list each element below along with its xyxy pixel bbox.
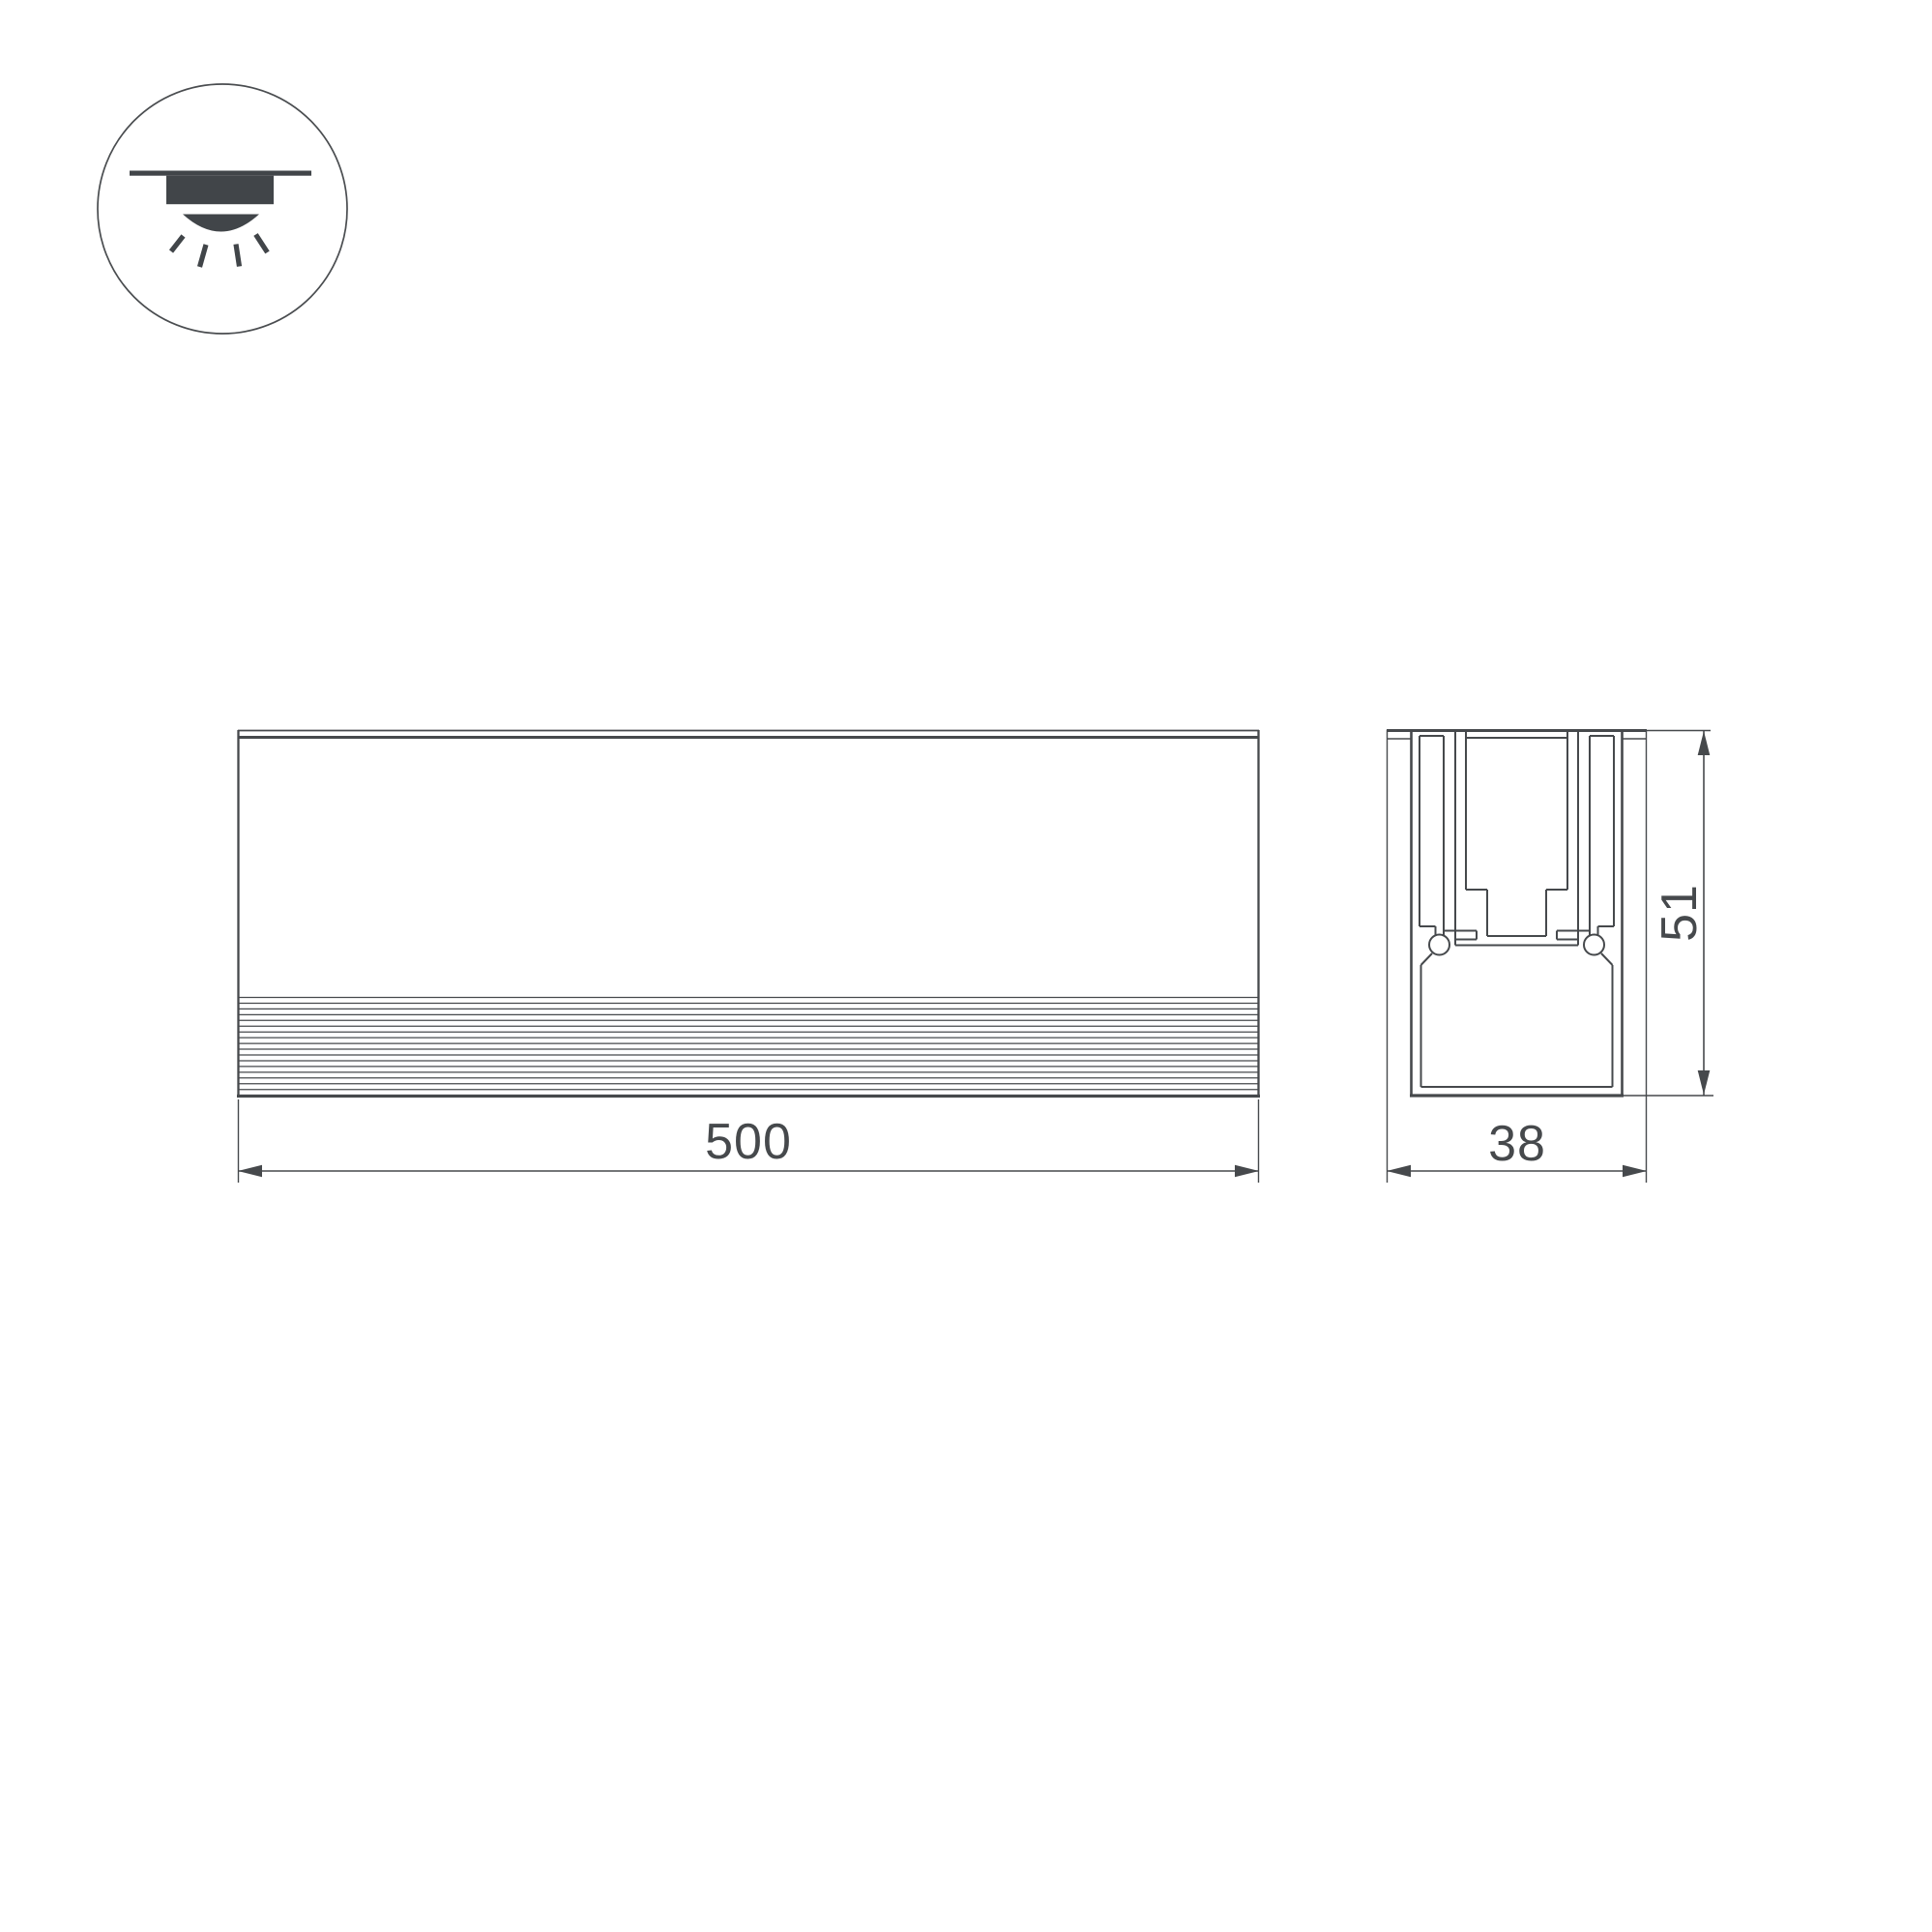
icon-recessed-housing [166, 176, 274, 205]
arrow-length-left [238, 1165, 262, 1177]
section-screw-boss-right [1584, 935, 1604, 955]
dimension-arrowheads [238, 731, 1710, 1177]
arrow-height-top [1698, 731, 1711, 755]
arrow-width-left [1387, 1165, 1411, 1177]
dim-label-length: 500 [705, 1114, 792, 1170]
front-view [237, 730, 1260, 1097]
icon-ceiling-line [130, 171, 311, 176]
drawing-canvas: 500 38 51 [0, 0, 1932, 1932]
arrow-length-right [1235, 1165, 1259, 1177]
recessed-ceiling-light-icon [98, 84, 347, 334]
dimension-labels: 500 38 51 [705, 884, 1708, 1172]
section-view [1387, 730, 1647, 1097]
dim-label-height: 51 [1652, 884, 1708, 942]
front-diffuser-rib-lines [238, 998, 1259, 1090]
arrow-width-right [1623, 1165, 1647, 1177]
arrow-height-bottom [1698, 1070, 1711, 1095]
section-internal-profile [1420, 730, 1614, 1087]
dimension-annotations [238, 730, 1713, 1183]
dim-label-width: 38 [1488, 1116, 1546, 1172]
icon-circle-border [98, 84, 347, 334]
section-screw-boss-left [1429, 935, 1449, 955]
